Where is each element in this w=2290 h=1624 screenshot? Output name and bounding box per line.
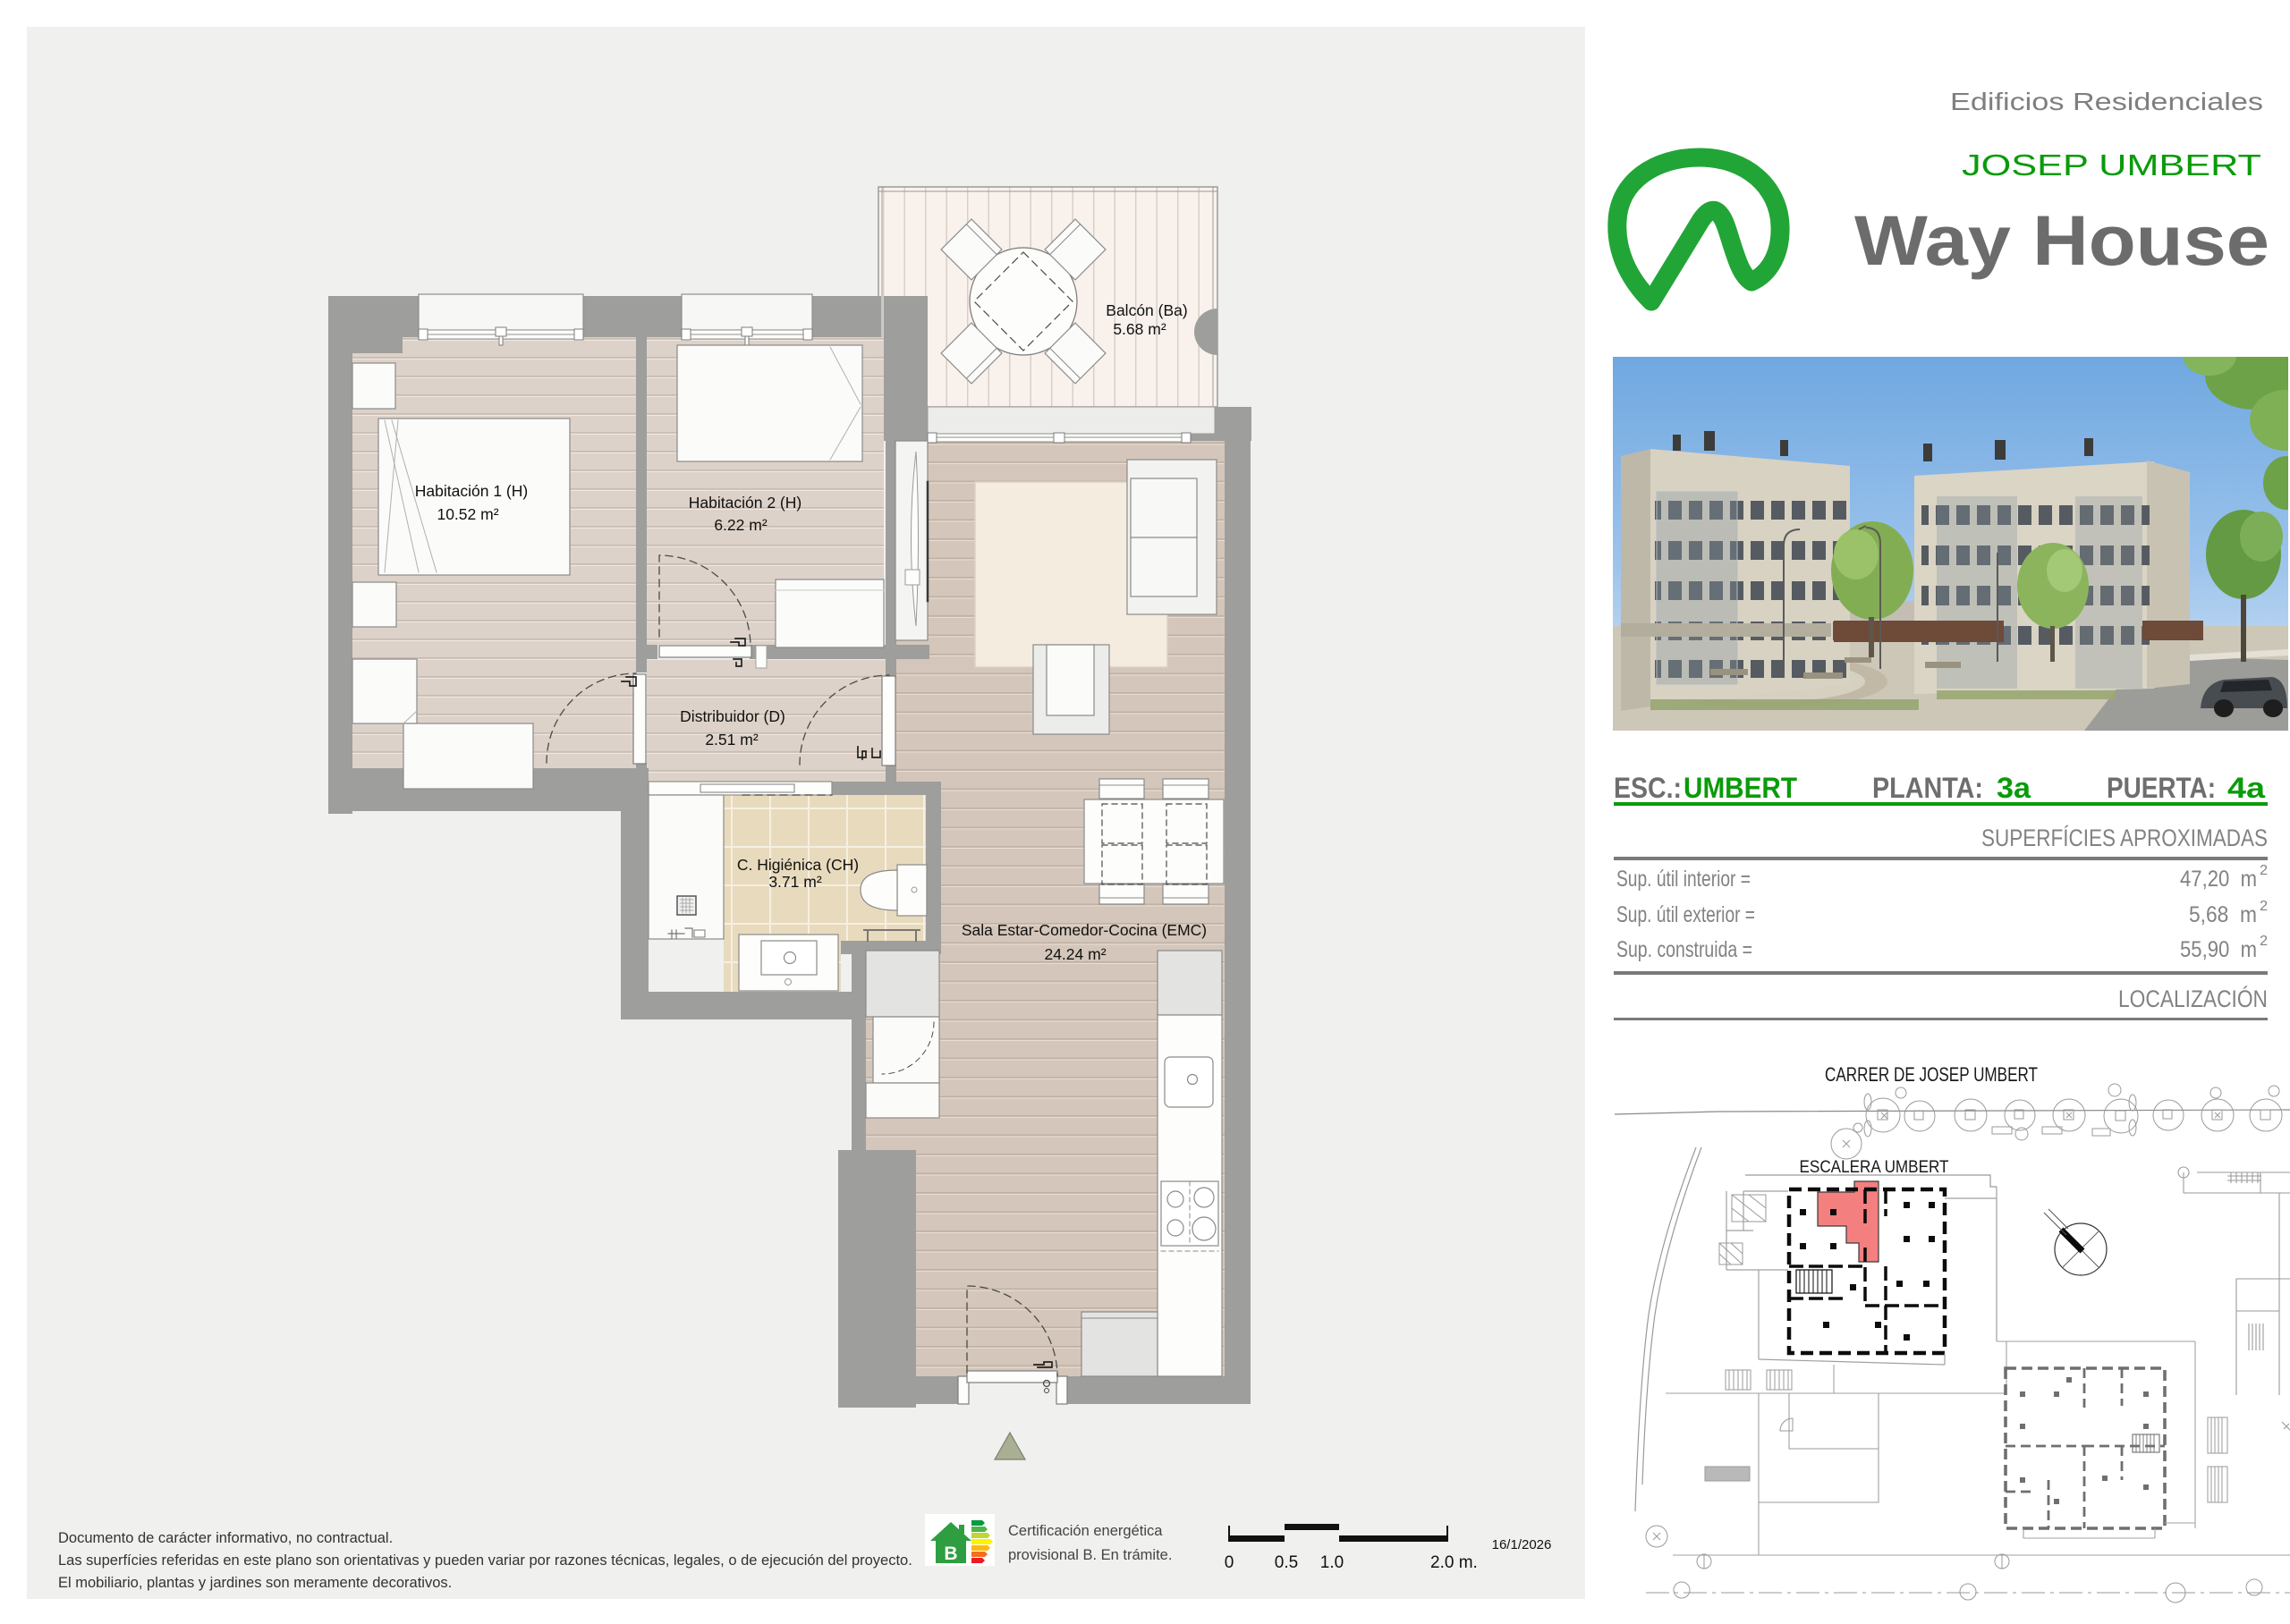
svg-text:ESCALERA UMBERT: ESCALERA UMBERT bbox=[1800, 1158, 1949, 1177]
svg-text:16/1/2026: 16/1/2026 bbox=[1492, 1537, 1552, 1552]
svg-text:4a: 4a bbox=[2227, 772, 2265, 804]
svg-text:LOCALIZACIÓN: LOCALIZACIÓN bbox=[2118, 985, 2268, 1012]
svg-text:0.5: 0.5 bbox=[1275, 1553, 1298, 1572]
svg-text:2: 2 bbox=[2260, 899, 2268, 914]
svg-text:3.71 m²: 3.71 m² bbox=[768, 873, 821, 891]
svg-text:Certificación energética: Certificación energética bbox=[1008, 1523, 1163, 1539]
svg-text:2.51 m²: 2.51 m² bbox=[705, 731, 758, 749]
svg-text:55,90 m: 55,90 m bbox=[2180, 937, 2257, 962]
svg-text:CARRER DE JOSEP UMBERT: CARRER DE JOSEP UMBERT bbox=[1825, 1063, 2038, 1086]
svg-text:Sala Estar-Comedor-Cocina (EMC: Sala Estar-Comedor-Cocina (EMC) bbox=[962, 921, 1207, 939]
svg-text:B: B bbox=[944, 1544, 957, 1564]
svg-text:1.0: 1.0 bbox=[1320, 1553, 1344, 1572]
svg-text:24.24 m²: 24.24 m² bbox=[1044, 945, 1106, 963]
svg-text:SUPERFÍCIES APROXIMADAS: SUPERFÍCIES APROXIMADAS bbox=[1981, 825, 2268, 851]
svg-text:5,68 m: 5,68 m bbox=[2189, 902, 2257, 927]
svg-text:Distribuidor (D): Distribuidor (D) bbox=[680, 707, 785, 725]
svg-text:UMBERT: UMBERT bbox=[1684, 772, 1797, 804]
svg-text:PLANTA:: PLANTA: bbox=[1872, 772, 1983, 804]
svg-text:3a: 3a bbox=[1997, 772, 2031, 804]
svg-text:0: 0 bbox=[1225, 1553, 1234, 1572]
svg-text:Habitación 2 (H): Habitación 2 (H) bbox=[689, 494, 801, 512]
svg-text:Sup. construida =: Sup. construida = bbox=[1616, 937, 1752, 962]
svg-text:El mobiliario, plantas y jardi: El mobiliario, plantas y jardines son me… bbox=[58, 1575, 452, 1591]
svg-text:Habitación 1 (H): Habitación 1 (H) bbox=[415, 482, 528, 500]
svg-text:5.68 m²: 5.68 m² bbox=[1113, 320, 1166, 338]
svg-text:6.22 m²: 6.22 m² bbox=[714, 516, 767, 534]
svg-text:10.52 m²: 10.52 m² bbox=[437, 505, 498, 523]
svg-text:2: 2 bbox=[2260, 863, 2268, 878]
svg-text:Documento de carácter informat: Documento de carácter informativo, no co… bbox=[58, 1530, 393, 1546]
svg-text:Sup. útil exterior =: Sup. útil exterior = bbox=[1616, 902, 1755, 927]
svg-text:Edificios Residenciales: Edificios Residenciales bbox=[1950, 88, 2263, 115]
svg-text:provisional B. En trámite.: provisional B. En trámite. bbox=[1008, 1547, 1172, 1563]
svg-text:Las superfícies referidas en e: Las superfícies referidas en este plano … bbox=[58, 1552, 912, 1569]
svg-text:PUERTA:: PUERTA: bbox=[2107, 772, 2216, 804]
svg-text:JOSEP UMBERT: JOSEP UMBERT bbox=[1962, 148, 2261, 182]
svg-text:47,20 m: 47,20 m bbox=[2180, 867, 2257, 892]
svg-text:ESC.:: ESC.: bbox=[1614, 772, 1682, 804]
svg-text:Way House: Way House bbox=[1854, 200, 2269, 280]
svg-text:C. Higiénica (CH): C. Higiénica (CH) bbox=[737, 856, 859, 874]
svg-text:2.0 m.: 2.0 m. bbox=[1430, 1553, 1478, 1572]
svg-text:2: 2 bbox=[2260, 934, 2268, 949]
svg-text:Sup. útil interior =: Sup. útil interior = bbox=[1616, 867, 1751, 892]
svg-text:Balcón (Ba): Balcón (Ba) bbox=[1106, 301, 1187, 319]
